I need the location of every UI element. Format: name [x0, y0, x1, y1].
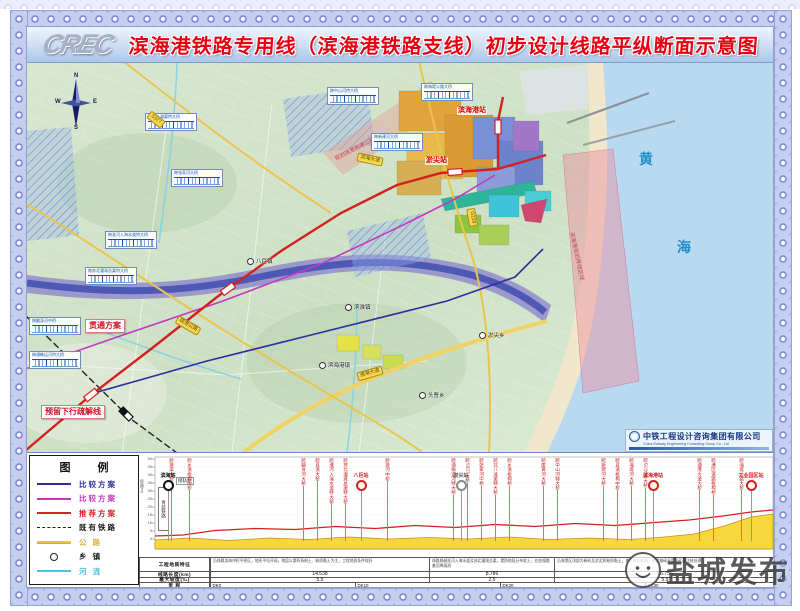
- station-leader-line: [751, 491, 752, 541]
- bridge-label: 跨乡道框构桥: [505, 458, 514, 541]
- legend-swatch: [37, 553, 71, 561]
- bridge-leader-line: [603, 486, 604, 541]
- bridge-label-text: 跨县道框构中桥: [614, 458, 622, 490]
- profile-ytick: 45: [141, 464, 152, 470]
- bridge-leader-line: [331, 504, 332, 541]
- legend-item: 既有铁路: [37, 521, 131, 536]
- bridge-label-text: 跨海堤河大桥: [628, 458, 636, 486]
- compass-icon: N S W E: [53, 75, 99, 131]
- station-name: 滨海站: [160, 473, 175, 480]
- town-marker: 头罾乡: [419, 391, 445, 399]
- legend-item-label: 比较方案: [79, 479, 117, 490]
- bridge-leader-line: [189, 490, 190, 541]
- station-marker: 滨海站: [155, 473, 181, 541]
- bridge-leader-line: [543, 486, 544, 541]
- bridge-label: 跨中山河特大桥: [553, 458, 562, 541]
- bridge-label: 跨乡道框构中桥: [185, 458, 194, 541]
- town-circle-icon: [419, 392, 426, 399]
- profile-ytick: 50: [141, 456, 152, 462]
- bridge-label: 跨翻身河大桥: [299, 458, 308, 541]
- profile-ytick: 15: [141, 512, 152, 518]
- bridge-leader-line: [699, 490, 700, 541]
- bridge-leader-line: [481, 486, 482, 541]
- bridge-label: 跨县道大桥: [313, 458, 322, 541]
- bridge-label-text: 跨张家河中桥: [478, 458, 486, 486]
- legend-swatch: [37, 527, 71, 528]
- station-name: 工业园区站: [738, 473, 763, 480]
- legend-item: 比较方案: [37, 492, 131, 507]
- town-name: 头罾乡: [428, 391, 445, 399]
- bridge-info-box: 跨淮河入海水道特大桥: [105, 231, 157, 249]
- bridge-info-name: 跨翻身河中桥: [32, 319, 78, 324]
- town-marker: 淤尖乡: [479, 331, 505, 339]
- map-station-label: 淤尖站: [425, 157, 448, 165]
- bridge-label-text: 跨排河中桥: [384, 458, 392, 481]
- legend-title: 图 例: [37, 459, 131, 475]
- bridge-info-name: 跨张家河大桥: [174, 171, 220, 176]
- station-name: 淤尖站: [453, 473, 468, 480]
- table-cell: 沿线属滨海冲积平原区，地形平坦开阔，地层以第四系粉土、粉质黏土为主，工程地质条件…: [210, 558, 429, 571]
- station-marker: 淤尖站: [448, 473, 474, 541]
- legend-item: 推荐方案: [37, 506, 131, 521]
- mileage-mark: DK20: [500, 583, 513, 588]
- bridge-info-name: 跨淮河入海水道特大桥: [108, 233, 154, 238]
- bridge-label: 跨新建河大桥: [599, 458, 608, 541]
- legend-swatch: [37, 570, 71, 572]
- bridge-elevation-sketch: [330, 95, 376, 103]
- map-graphics: [27, 63, 774, 453]
- bridge-elevation-sketch: [374, 141, 420, 149]
- profile-ytick: 0: [141, 536, 152, 542]
- bridge-label: 跨废黄河大桥: [539, 458, 548, 541]
- bridge-leader-line: [631, 486, 632, 541]
- bridge-label: 跨港区道路框构桥: [709, 458, 718, 541]
- watermark-logo-icon: [624, 551, 662, 589]
- crec-logo: CREC: [39, 29, 115, 60]
- bridge-leader-line: [509, 486, 510, 541]
- bridge-info-box: 跨中山河特大桥: [327, 87, 379, 105]
- compass-s: S: [74, 125, 78, 131]
- map-station-label: 滨海港站: [457, 107, 487, 115]
- station-leader-line: [461, 491, 462, 541]
- legend-item-label: 比较方案: [79, 493, 117, 504]
- poster: CREC 滨海港铁路专用线（滨海港铁路支线）初步设计线路平纵断面示意图: [0, 0, 800, 611]
- bridge-elevation-sketch: [424, 91, 470, 99]
- station-marker: 滨海港站: [640, 473, 666, 541]
- profile-ytick: 30: [141, 488, 152, 494]
- bridge-label: 跨北八滩渠特大桥: [491, 458, 500, 541]
- bridge-label: 跨淮河入海水道特大桥: [327, 458, 336, 541]
- bridge-info-box: 跨新建河大桥: [371, 133, 423, 151]
- town-name: 滨淮镇: [354, 303, 371, 311]
- profile-ytick: 20: [141, 504, 152, 510]
- company-strip: 中铁工程设计咨询集团有限公司 China Railway Engineering…: [625, 429, 773, 452]
- legend-item-label: 既有铁路: [79, 522, 117, 533]
- legend-swatch: [37, 498, 71, 500]
- mileage-mark: DK10: [355, 583, 368, 588]
- bridge-label-text: 跨北八滩渠特大桥: [492, 458, 500, 495]
- table-row-label: 工程地质特征: [140, 558, 210, 571]
- bridge-label-text: 跨中山河特大桥: [554, 458, 562, 490]
- legend-item-label: 公 路: [79, 537, 102, 548]
- station-circle-icon: [163, 480, 174, 491]
- bridge-leader-line: [617, 490, 618, 541]
- compass-n: N: [74, 73, 78, 79]
- station-name: 八巨站: [353, 473, 368, 480]
- plan-label: 贯通方案: [85, 319, 125, 333]
- bridge-label-text: 跨县道大桥: [314, 458, 322, 481]
- bridge-leader-line: [345, 504, 346, 541]
- table-cell: 线路跨越淮河入海水道及苏北灌溉总渠，堤防地段分布软土，应加强路基沉降观测: [429, 558, 554, 571]
- town-circle-icon: [247, 258, 254, 265]
- bridge-info-name: 跨苏北灌溉总渠特大桥: [88, 269, 134, 274]
- bridge-label-text: 跨通港大道大桥: [696, 458, 704, 490]
- compass-w: W: [55, 99, 61, 105]
- bridge-label: 跨海堤河大桥: [627, 458, 636, 541]
- profile-ytick: 5: [141, 528, 152, 534]
- watermark-text: 盐城发布: [666, 549, 790, 591]
- bridge-label: 跨张家河中桥: [477, 458, 486, 541]
- company-logo-icon: [629, 431, 640, 442]
- company-strip-bar: [629, 447, 769, 450]
- bridge-leader-line: [317, 481, 318, 541]
- station-circle-icon: [356, 480, 367, 491]
- bridge-info-box: 跨翻身河中桥: [29, 317, 81, 335]
- bridge-info-name: 跨通榆运河特大桥: [32, 353, 78, 358]
- legend: 图 例 比较方案 比较方案: [29, 455, 139, 585]
- legend-swatch: [37, 512, 71, 514]
- station-leader-line: [361, 491, 362, 541]
- town-name: 淤尖乡: [488, 331, 505, 339]
- station-marker: 工业园区站: [738, 473, 764, 541]
- legend-item: 乡 镇: [37, 550, 131, 565]
- profile-ytick: 10: [141, 520, 152, 526]
- profile-ytick: 25: [141, 496, 152, 502]
- header: CREC 滨海港铁路专用线（滨海港铁路支线）初步设计线路平纵断面示意图: [27, 27, 774, 63]
- town-marker: 八巨镇: [247, 257, 273, 265]
- station-circle-icon: [648, 480, 659, 491]
- bridge-info-name: 跨中山河特大桥: [330, 89, 376, 94]
- page-title: 滨海港铁路专用线（滨海港铁路支线）初步设计线路平纵断面示意图: [111, 30, 774, 59]
- bridge-label: 跨排河中桥: [383, 458, 392, 541]
- sheet: CREC 滨海港铁路专用线（滨海港铁路支线）初步设计线路平纵断面示意图: [26, 26, 774, 588]
- bridge-leader-line: [303, 486, 304, 541]
- bridge-label-text: 跨新建河大桥: [600, 458, 608, 486]
- bridge-info-name: 跨海堤公路大桥: [424, 85, 470, 90]
- town-name: 八巨镇: [256, 257, 273, 265]
- frame-ghost-top: [0, 0, 800, 9]
- bridge-label: 跨县道框构中桥: [613, 458, 622, 541]
- bridge-elevation-sketch: [32, 359, 78, 367]
- bridge-elevation-sketch: [108, 239, 154, 247]
- bridge-leader-line: [557, 490, 558, 541]
- station-circle-icon: [746, 480, 757, 491]
- legend-item-label: 河 流: [79, 566, 102, 577]
- bridge-label: 跨通港大道大桥: [695, 458, 704, 541]
- bridge-info-box: 跨通榆运河特大桥: [29, 351, 81, 369]
- town-marker: 滨淮镇: [345, 303, 371, 311]
- sea-label-huang: 黄: [639, 149, 653, 169]
- watermark: 盐城发布: [624, 549, 790, 591]
- sea-label-hai: 海: [677, 237, 691, 257]
- legend-swatch: [37, 541, 71, 544]
- bridge-info-box: 跨张家河大桥: [171, 169, 223, 187]
- town-circle-icon: [345, 304, 352, 311]
- table-row-label: 里 程: [140, 583, 210, 588]
- station-leader-line: [653, 491, 654, 541]
- legend-swatch: [37, 483, 71, 485]
- bridge-info-box: 跨海堤公路大桥: [421, 83, 473, 101]
- compass-e: E: [93, 99, 97, 105]
- town-marker: 滨海港镇: [319, 361, 350, 369]
- bridge-label-text: 跨废黄河大桥: [540, 458, 548, 486]
- legend-item: 公 路: [37, 535, 131, 550]
- town-circle-icon: [479, 332, 486, 339]
- legend-item: 比较方案: [37, 477, 131, 492]
- bridge-leader-line: [713, 495, 714, 541]
- bridge-label-text: 跨港区道路框构桥: [710, 458, 718, 495]
- bridge-label-text: 跨乡道框构中桥: [186, 458, 194, 490]
- bridge-leader-line: [495, 495, 496, 541]
- plan-map: N S W E 黄 海 滨海港规划岸线区域 规划疏港高速公路 贯通方案预留下行疏…: [27, 63, 774, 453]
- station-marker: 八巨站: [348, 473, 374, 541]
- bridge-leader-line: [387, 481, 388, 541]
- town-circle-icon: [319, 362, 326, 369]
- legend-item-label: 推荐方案: [79, 508, 117, 519]
- legend-item-label: 乡 镇: [79, 551, 102, 562]
- plan-label: 预留下行疏解线: [41, 405, 105, 419]
- frame-right: [774, 10, 792, 606]
- bridge-elevation-sketch: [32, 325, 78, 333]
- legend-items: 比较方案 比较方案 推荐方案: [37, 477, 131, 579]
- station-leader-line: [168, 491, 169, 541]
- bridge-label-text: 跨翻身河大桥: [300, 458, 308, 486]
- station-name: 滨海港站: [643, 473, 663, 480]
- town-name: 滨海港镇: [328, 361, 350, 369]
- bridge-info-name: 跨新建河大桥: [374, 135, 420, 140]
- bridge-info-box: 跨苏北灌溉总渠特大桥: [85, 267, 137, 285]
- bridge-elevation-sketch: [88, 275, 134, 283]
- profile-ytick: 40: [141, 472, 152, 478]
- company-name-en: China Railway Engineering Consulting Gro…: [643, 442, 769, 446]
- bridge-label-text: 跨乡道框构桥: [506, 458, 514, 486]
- bridge-label-text: 跨淮河入海水道特大桥: [328, 458, 336, 504]
- legend-item: 河 流: [37, 564, 131, 579]
- company-name: 中铁工程设计咨询集团有限公司: [643, 431, 761, 442]
- station-circle-icon: [456, 480, 467, 491]
- profile-ytick: 35: [141, 480, 152, 486]
- bridge-elevation-sketch: [174, 177, 220, 185]
- mileage-mark: DK0: [210, 583, 221, 588]
